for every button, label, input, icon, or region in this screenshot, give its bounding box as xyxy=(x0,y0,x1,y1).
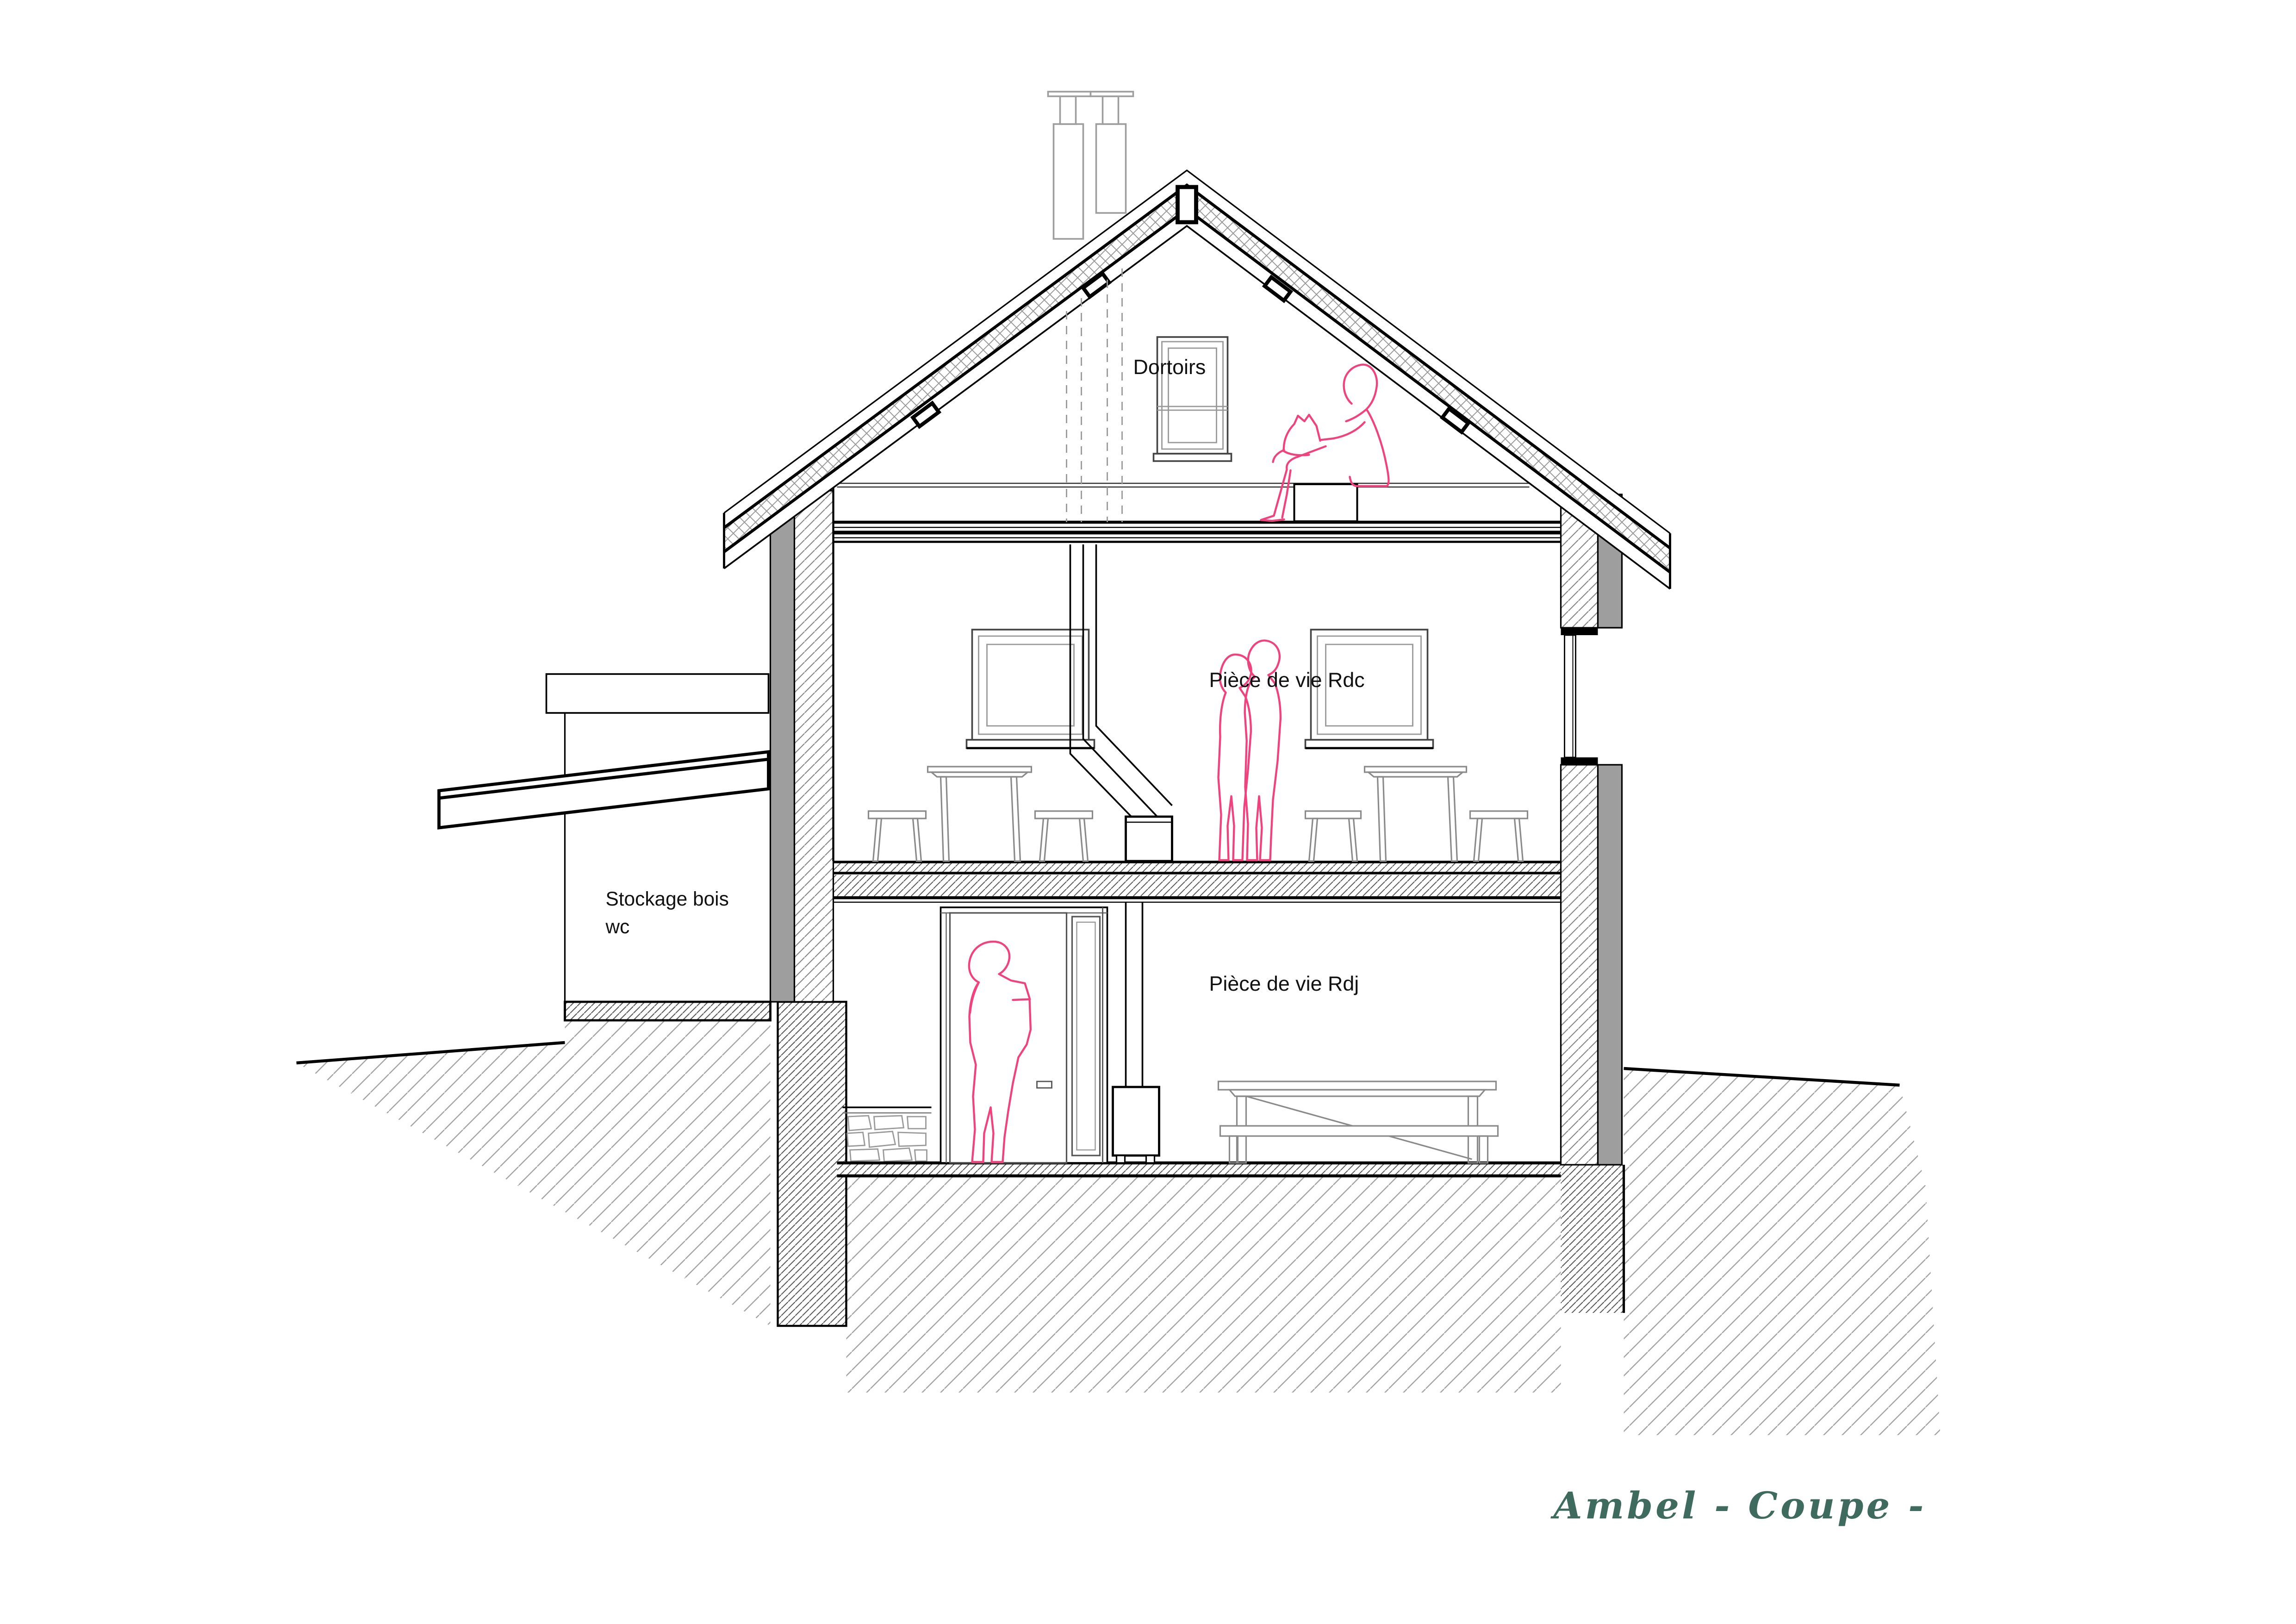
ground xyxy=(297,1020,1941,1435)
ground-hatch-left xyxy=(297,1020,771,1326)
drawing-sheet: Stockage bois wc xyxy=(0,0,2296,1624)
annex-beam xyxy=(439,752,769,828)
attic-floor-slab xyxy=(834,483,1561,542)
chimney-pipe-2 xyxy=(1103,96,1119,124)
right-wall-cladding-lower xyxy=(1598,765,1622,1165)
rdj-stove xyxy=(1113,903,1159,1163)
annex-stockage: Stockage bois wc xyxy=(439,674,771,1020)
rdc-stove xyxy=(1126,817,1172,861)
chimney-cap-2 xyxy=(1091,92,1133,96)
rdc-stool-4 xyxy=(1470,811,1528,861)
left-wall xyxy=(771,487,834,1002)
rdc-room xyxy=(869,544,1528,861)
section-drawing: Stockage bois wc xyxy=(0,0,2296,1624)
chimney-stack-2 xyxy=(1096,124,1126,213)
rdc-stool-1 xyxy=(869,811,926,861)
chimney-pipe-1 xyxy=(1060,96,1076,124)
left-wall-insulation xyxy=(795,491,834,1002)
right-wall-insulation-lower xyxy=(1561,765,1598,1165)
label-piece-de-vie-rdc: Pièce de vie Rdc xyxy=(1209,668,1365,692)
rdj-floor-slab xyxy=(837,1163,1561,1176)
rdj-room xyxy=(941,903,1498,1163)
right-wall xyxy=(1561,485,1622,1165)
rdc-table-left xyxy=(928,767,1032,861)
sheet-title: Ambel - Coupe - xyxy=(1550,1484,1927,1527)
ground-hatch-under-house xyxy=(846,1176,1561,1393)
ridge-beam xyxy=(1178,187,1196,222)
door-handle xyxy=(1037,1081,1052,1088)
chimneys xyxy=(1048,92,1133,239)
label-piece-de-vie-rdj: Pièce de vie Rdj xyxy=(1209,972,1359,995)
rdc-stool-3 xyxy=(1306,811,1361,861)
left-wall-cladding xyxy=(771,502,795,1002)
foundation-wall-right xyxy=(1561,1165,1624,1313)
label-dortoirs: Dortoirs xyxy=(1133,356,1206,379)
right-wall-window-jamb xyxy=(1565,635,1576,757)
label-wc: wc xyxy=(605,916,630,937)
ground-hatch-right xyxy=(1624,1068,1941,1435)
rdc-table-right xyxy=(1365,767,1467,861)
attic-bench xyxy=(1294,484,1357,521)
label-stockage-bois: Stockage bois xyxy=(606,888,729,910)
right-wall-window-lintel xyxy=(1561,628,1598,635)
chimney-cap-1 xyxy=(1048,92,1091,96)
annex-floor-slab xyxy=(565,1002,771,1020)
chimney-stack-1 xyxy=(1054,124,1083,239)
annex-roof-slab xyxy=(547,674,769,713)
rdc-stool-2 xyxy=(1035,811,1093,861)
rdj-entrance-door xyxy=(941,907,1108,1163)
rdj-table xyxy=(1219,1081,1496,1163)
rdj-bench xyxy=(1220,1126,1498,1163)
right-wall-window-sill xyxy=(1561,757,1598,765)
rdc-window-left xyxy=(967,630,1095,748)
rdc-floor-slab xyxy=(834,862,1561,902)
stone-retaining-wall xyxy=(843,1107,932,1162)
foundation-wall-left xyxy=(778,1002,846,1326)
